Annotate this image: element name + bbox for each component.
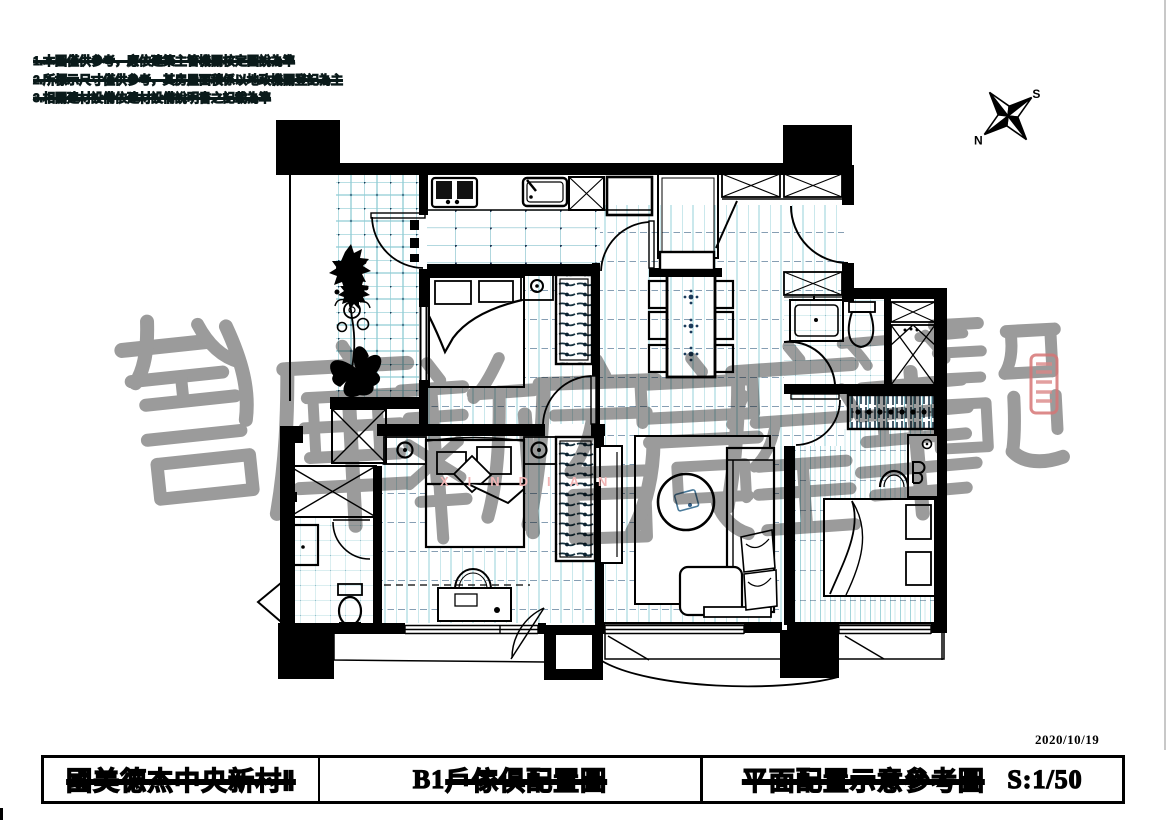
- svg-text:S: S: [1032, 87, 1040, 101]
- svg-text:N: N: [974, 133, 983, 147]
